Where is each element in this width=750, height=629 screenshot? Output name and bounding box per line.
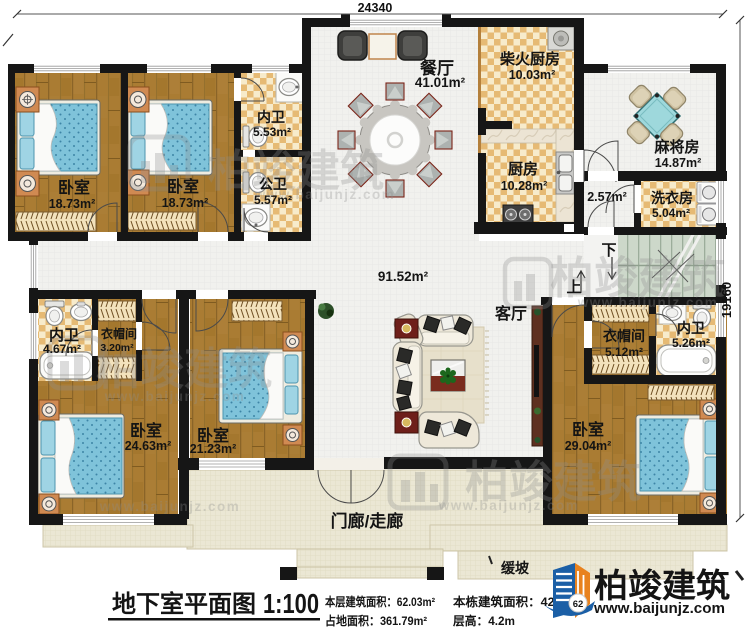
svg-text:内卫: 内卫 <box>257 109 285 125</box>
svg-text:本层建筑面积：62.03m²: 本层建筑面积：62.03m² <box>325 594 435 609</box>
svg-text:24340: 24340 <box>358 1 393 15</box>
svg-text:5.57m²: 5.57m² <box>254 193 292 207</box>
svg-text:缓坡: 缓坡 <box>501 560 530 576</box>
svg-text:10.03m²: 10.03m² <box>509 68 556 82</box>
svg-text:www.baijunjz.com: www.baijunjz.com <box>438 498 580 513</box>
svg-text:厨房: 厨房 <box>508 160 538 178</box>
svg-text:下: 下 <box>601 242 616 259</box>
svg-text:洗衣房: 洗衣房 <box>651 190 693 206</box>
svg-text:24.63m²: 24.63m² <box>125 439 172 453</box>
svg-text:www.baijunjz.com: www.baijunjz.com <box>99 499 241 514</box>
svg-text:10.28m²: 10.28m² <box>501 179 548 193</box>
svg-text:19160: 19160 <box>719 282 734 318</box>
svg-text:3.20m²: 3.20m² <box>100 342 134 354</box>
svg-text:4.67m²: 4.67m² <box>43 342 81 356</box>
svg-text:62: 62 <box>573 599 584 610</box>
svg-text:41.01m²: 41.01m² <box>415 75 466 90</box>
svg-text:5.04m²: 5.04m² <box>652 206 690 220</box>
svg-text:占地面积：361.79m²: 占地面积：361.79m² <box>325 613 427 628</box>
svg-text:www.baijunjz.com: www.baijunjz.com <box>593 601 725 617</box>
svg-text:门廊/走廊: 门廊/走廊 <box>331 511 404 531</box>
svg-text:21.23m²: 21.23m² <box>190 442 237 456</box>
svg-text:5.12m²: 5.12m² <box>605 345 643 359</box>
svg-text:上: 上 <box>566 279 581 296</box>
svg-text:衣帽间: 衣帽间 <box>101 326 137 341</box>
svg-text:层高：4.2m: 层高：4.2m <box>453 613 515 628</box>
svg-text:5.53m²: 5.53m² <box>253 125 291 139</box>
svg-text:29.04m²: 29.04m² <box>565 439 612 453</box>
svg-text:2.57m²: 2.57m² <box>587 190 627 204</box>
svg-text:麻将房: 麻将房 <box>653 138 699 156</box>
svg-text:18.73m²: 18.73m² <box>162 196 209 210</box>
svg-text:5.26m²: 5.26m² <box>672 336 710 350</box>
svg-text:1:100: 1:100 <box>263 588 319 619</box>
svg-text:本栋建筑面积：423.: 本栋建筑面积：423. <box>453 594 565 609</box>
svg-text:内卫: 内卫 <box>677 320 705 336</box>
svg-text:公卫: 公卫 <box>259 176 287 192</box>
svg-text:www.baijunjz.com: www.baijunjz.com <box>577 295 719 310</box>
svg-text:地下室平面图: 地下室平面图 <box>112 590 256 618</box>
svg-text:柴火厨房: 柴火厨房 <box>499 50 560 68</box>
svg-text:衣帽间: 衣帽间 <box>603 328 645 344</box>
svg-text:客厅: 客厅 <box>495 304 527 323</box>
svg-text:卧室: 卧室 <box>130 421 162 440</box>
svg-text:14.87m²: 14.87m² <box>655 156 702 170</box>
svg-text:卧室: 卧室 <box>572 420 604 439</box>
svg-text:柏竣建筑: 柏竣建筑 <box>594 567 730 604</box>
svg-text:卧室: 卧室 <box>167 177 199 196</box>
svg-text:18.73m²: 18.73m² <box>49 197 96 211</box>
svg-text:www.baijunjz.com: www.baijunjz.com <box>104 389 246 404</box>
svg-text:91.52m²: 91.52m² <box>378 269 429 284</box>
svg-text:卧室: 卧室 <box>58 178 90 197</box>
